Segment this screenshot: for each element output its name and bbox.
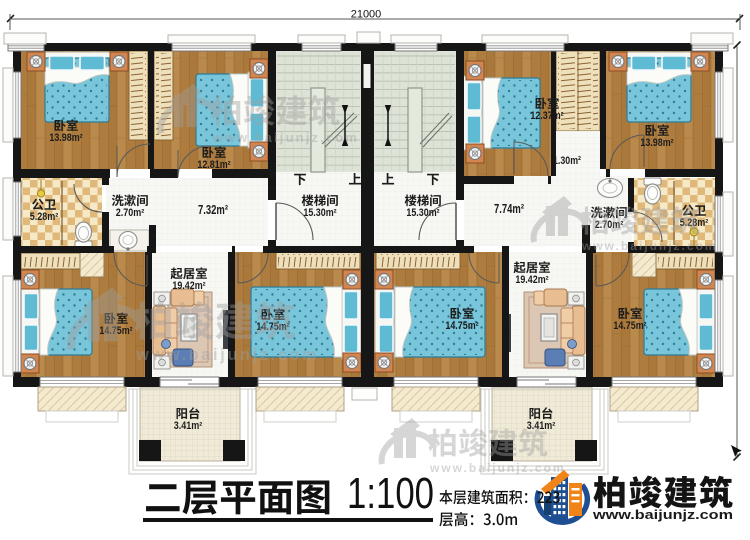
svg-text:14.75m²: 14.75m²	[613, 320, 647, 332]
svg-text:19.42m²: 19.42m²	[172, 280, 206, 292]
svg-text:3.41m²: 3.41m²	[527, 420, 556, 432]
svg-text:www.baijunjz.com: www.baijunjz.com	[581, 239, 718, 253]
svg-text:www.baijunjz.com: www.baijunjz.com	[592, 507, 733, 522]
svg-text:1.30m²: 1.30m²	[553, 155, 581, 167]
svg-text:www.baijunjz.com: www.baijunjz.com	[212, 130, 359, 145]
svg-text:5.28m²: 5.28m²	[30, 211, 59, 223]
svg-text:19.42m²: 19.42m²	[515, 274, 549, 286]
svg-text:www.baijunjz.com: www.baijunjz.com	[135, 346, 319, 364]
svg-text:7.74m²: 7.74m²	[494, 202, 524, 216]
svg-text:www.baijunjz.com: www.baijunjz.com	[429, 461, 566, 475]
svg-text:2.70m²: 2.70m²	[116, 207, 145, 219]
svg-text:15.30m²: 15.30m²	[406, 207, 440, 219]
svg-text:15.30m²: 15.30m²	[303, 207, 337, 219]
svg-text:7.32m²: 7.32m²	[198, 203, 228, 217]
svg-text:12.37m²: 12.37m²	[530, 110, 564, 122]
svg-text:21000: 21000	[351, 9, 382, 21]
svg-text:12.81m²: 12.81m²	[197, 159, 231, 171]
svg-text:1:100: 1:100	[347, 469, 434, 518]
svg-text:13.98m²: 13.98m²	[49, 132, 83, 144]
svg-text:13.98m²: 13.98m²	[640, 137, 674, 149]
svg-text:3.41m²: 3.41m²	[174, 420, 203, 432]
svg-text:14.75m²: 14.75m²	[445, 320, 479, 332]
